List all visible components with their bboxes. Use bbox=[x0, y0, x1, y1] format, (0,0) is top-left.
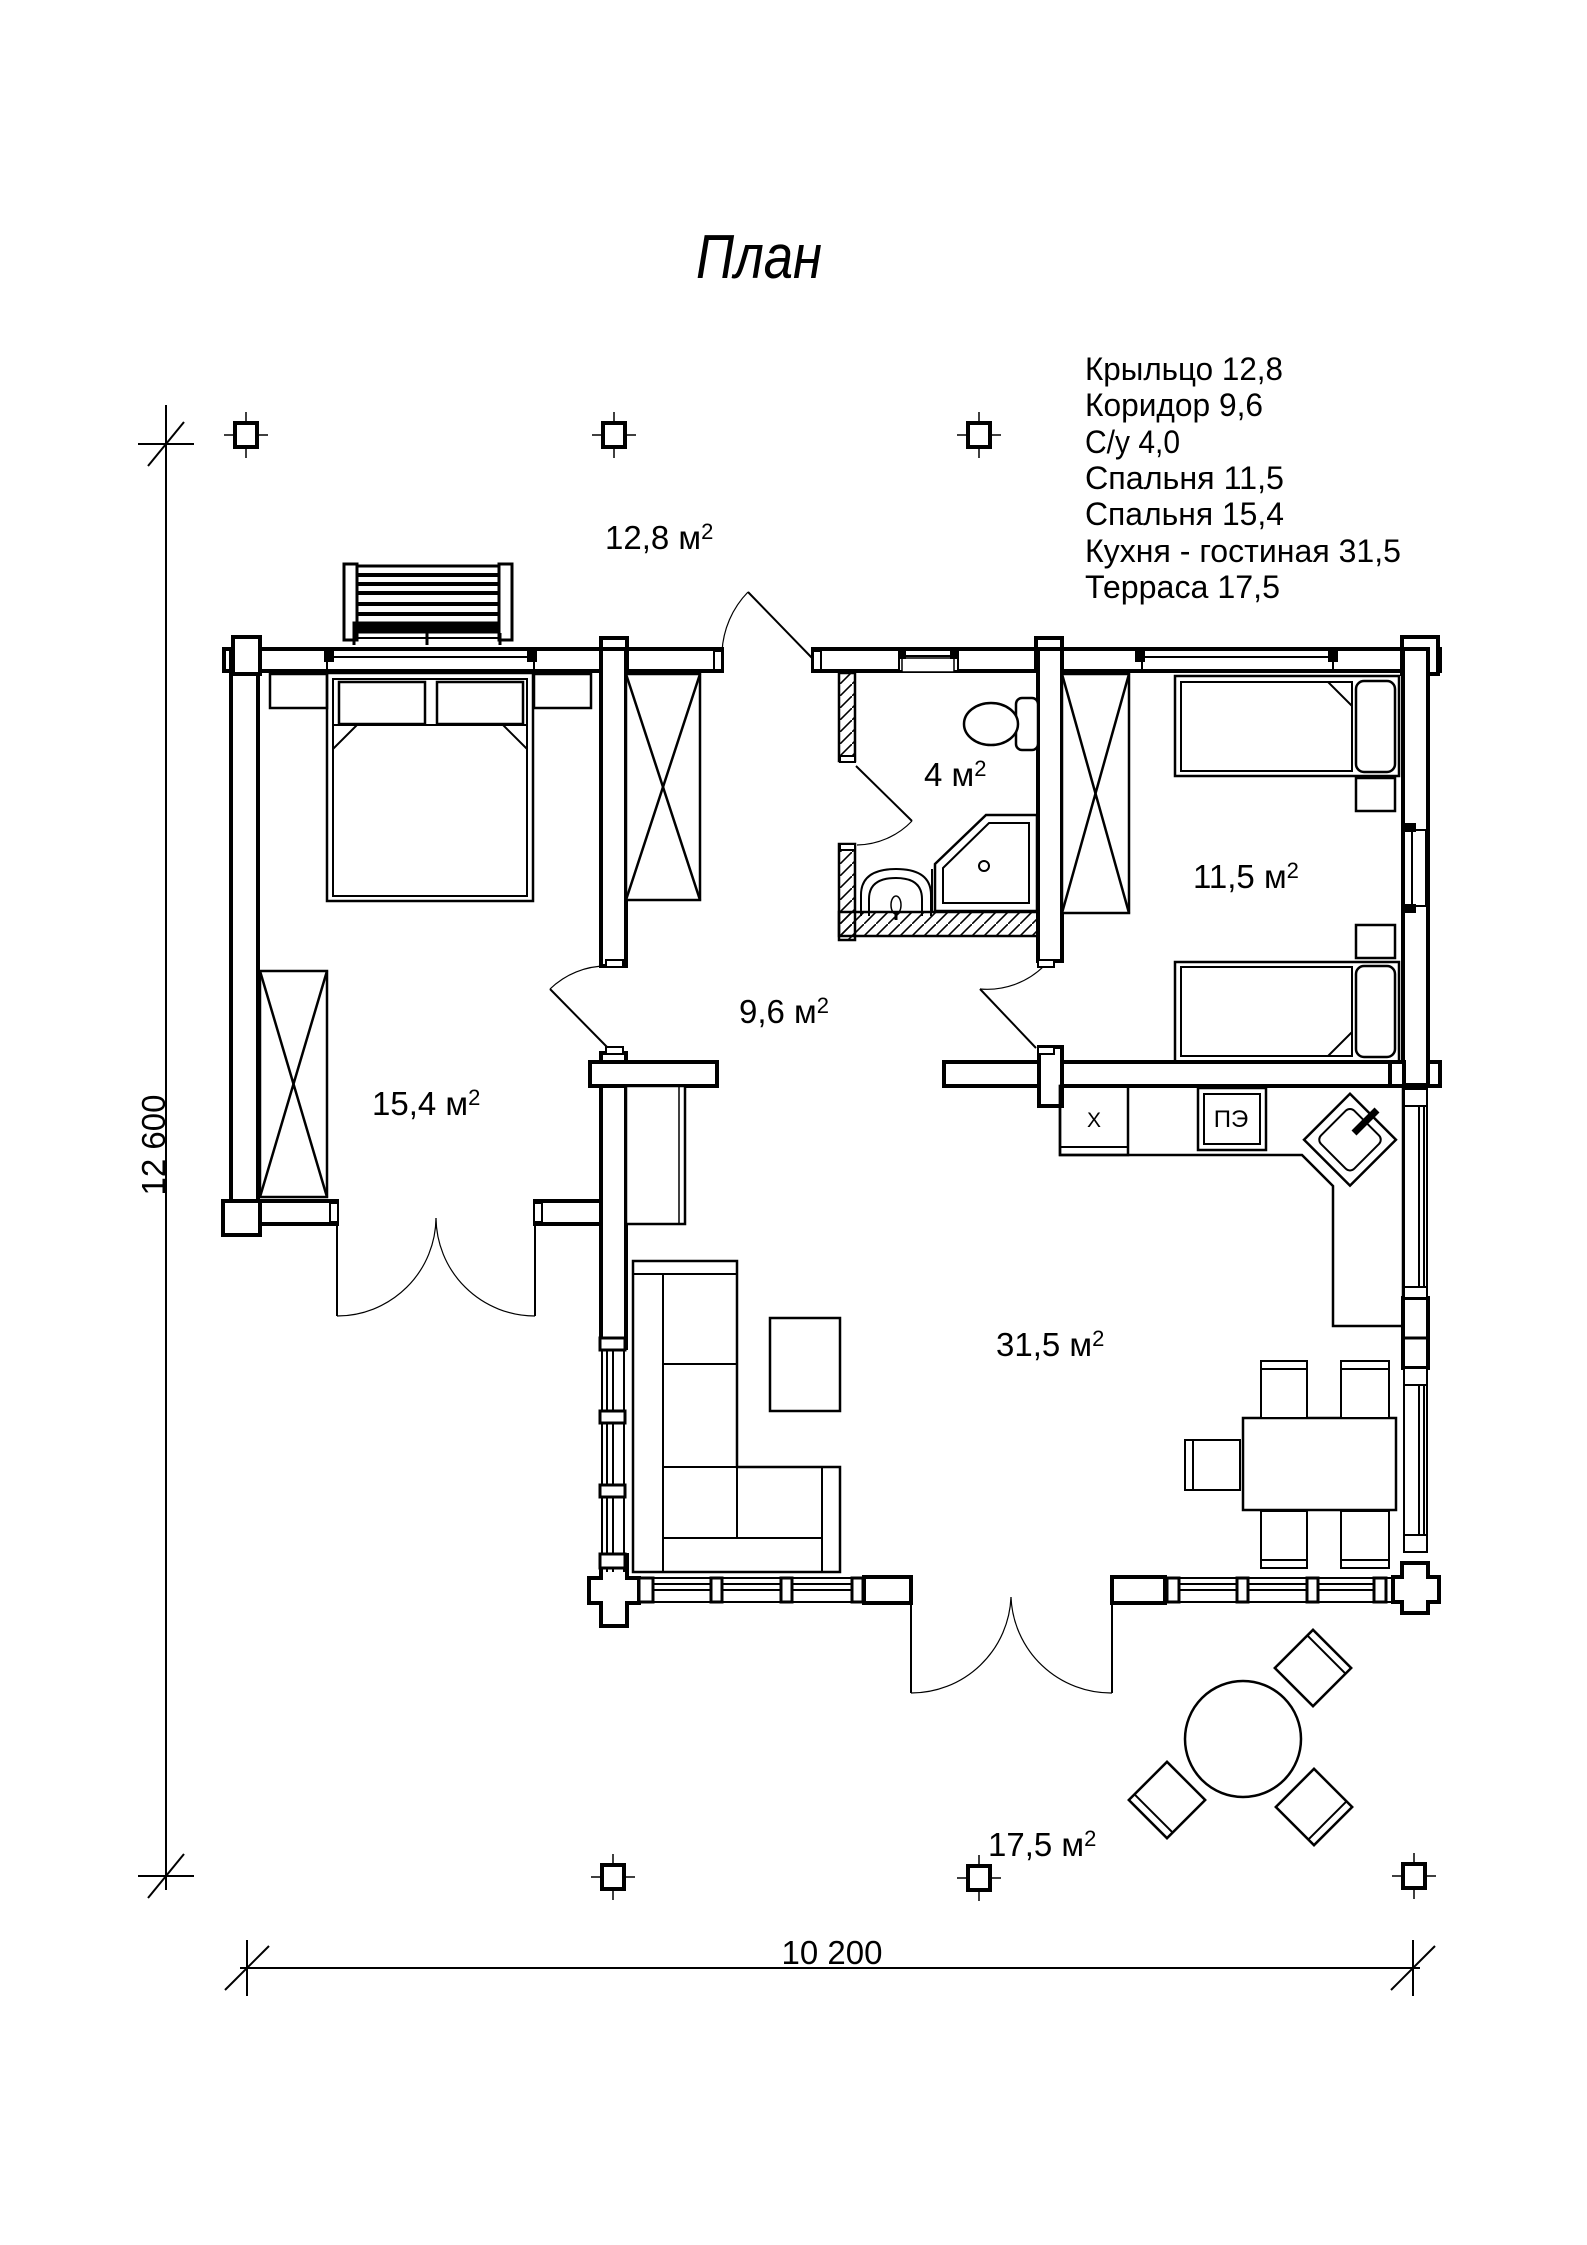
svg-text:9,6 м2: 9,6 м2 bbox=[739, 993, 829, 1030]
svg-text:ПЭ: ПЭ bbox=[1214, 1106, 1249, 1133]
svg-text:11,5 м2: 11,5 м2 bbox=[1193, 858, 1299, 895]
svg-text:Коридор 9,6: Коридор 9,6 bbox=[1085, 387, 1263, 423]
svg-text:31,5 м2: 31,5 м2 bbox=[996, 1326, 1104, 1363]
svg-text:Крыльцо 12,8: Крыльцо 12,8 bbox=[1085, 351, 1283, 387]
svg-text:12,8 м2: 12,8 м2 bbox=[605, 519, 713, 556]
svg-text:План: План bbox=[696, 223, 822, 292]
svg-text:12 600: 12 600 bbox=[135, 1095, 172, 1196]
svg-text:С/у 4,0: С/у 4,0 bbox=[1085, 424, 1180, 460]
svg-text:15,4 м2: 15,4 м2 bbox=[372, 1085, 480, 1122]
svg-text:17,5 м2: 17,5 м2 bbox=[988, 1826, 1096, 1863]
svg-text:10 200: 10 200 bbox=[782, 1934, 883, 1971]
svg-text:Х: Х bbox=[1087, 1109, 1101, 1132]
svg-text:Кухня - гостиная 31,5: Кухня - гостиная 31,5 bbox=[1085, 533, 1401, 569]
svg-text:Терраса 17,5: Терраса 17,5 bbox=[1085, 569, 1280, 605]
svg-text:Спальня 15,4: Спальня 15,4 bbox=[1085, 496, 1284, 532]
svg-text:Спальня 11,5: Спальня 11,5 bbox=[1085, 460, 1284, 496]
